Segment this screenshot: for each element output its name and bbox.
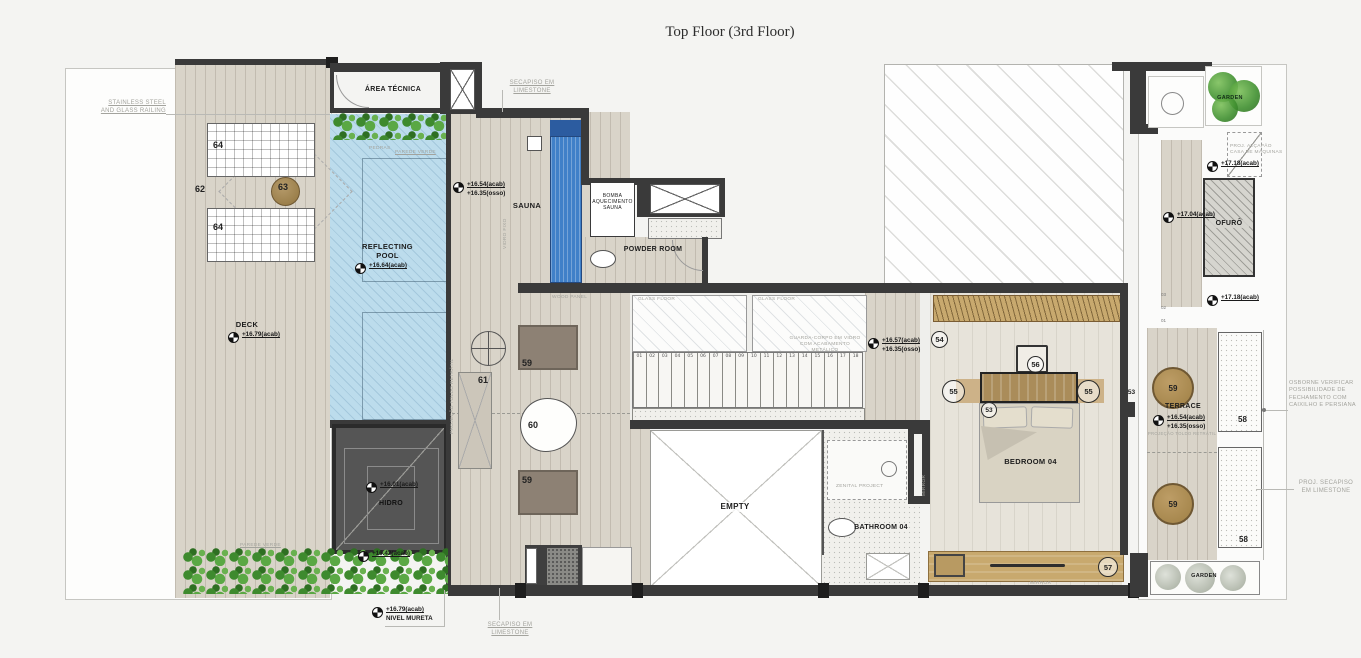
pedras-note: PEDRAS <box>369 146 391 152</box>
pilaster <box>918 583 929 598</box>
floor-strip <box>630 428 650 585</box>
room-label-bathroom: BATHROOM 04 <box>846 524 916 532</box>
wall <box>330 63 448 72</box>
item-number: 62 <box>195 184 205 194</box>
proj-alcapao-note: PROJ. ALÇAPÃO CASA DE MÁQUINAS <box>1230 144 1283 156</box>
round-table <box>471 331 506 366</box>
shower-head <box>881 461 897 477</box>
partition-slot <box>914 434 922 496</box>
room-label-bedroom: BEDROOM 04 <box>988 457 1073 466</box>
level-marker: +16.54(acab)+16.35(osso) <box>453 181 505 198</box>
terrace-pot-59: 59 <box>1152 483 1194 525</box>
mirror-note: MIRROR <box>922 466 928 496</box>
list-item: 05 <box>684 353 697 407</box>
leader-line <box>444 590 445 627</box>
pool-hedge <box>332 113 450 140</box>
sauna-plunge-pool <box>550 136 582 283</box>
level-marker: +16.01(acab) <box>366 481 418 493</box>
room-label-powder: POWDER ROOM <box>608 246 698 254</box>
roof-hatch-area <box>884 64 1124 287</box>
item-number: 59 <box>522 475 532 485</box>
zenital-note: ZENITAL PROJECT <box>836 484 883 490</box>
item-number: 59 <box>522 358 532 368</box>
vidro-fixo-note: VIDRO FIXO <box>503 205 509 249</box>
shaft-xbox <box>650 184 720 214</box>
list-item: 09 <box>735 353 748 407</box>
level-marker-icon <box>868 338 879 349</box>
wall <box>630 420 930 429</box>
wall <box>448 585 1136 596</box>
parede-verde-note: PAREDE VERDE <box>395 150 436 156</box>
level-marker: +16.79(acab)NIVEL MURETA <box>372 606 433 623</box>
proj-secapiso-note: PROJ. SECAPISO EM LIMESTONE <box>1295 480 1357 496</box>
wall <box>1112 62 1212 71</box>
item-number: 64 <box>213 140 223 150</box>
cabinet-grate <box>547 548 578 585</box>
item-number-circle: 56 <box>1027 356 1044 373</box>
level-marker: +16.64(acab) <box>355 262 407 274</box>
leader-line <box>499 588 500 620</box>
leader-line <box>166 114 330 115</box>
level-marker: +17.04(acab) <box>1163 211 1215 223</box>
powder-vanity <box>648 218 722 239</box>
level-marker-icon <box>1163 212 1174 223</box>
leader-line <box>1256 489 1294 490</box>
list-item: 17 <box>837 353 850 407</box>
level-marker: +16.42(acab) <box>358 550 410 562</box>
item-number: 58 <box>1238 415 1247 424</box>
proj-toldo-note: PROJEÇÃO TOLDO RETRÁTIL <box>450 348 456 434</box>
secapiso-top-note: SECAPISO EM LIMESTONE <box>506 80 558 96</box>
shaft-marks: 030201 <box>1161 288 1166 327</box>
level-marker-icon <box>372 607 383 618</box>
page-title: Top Floor (3rd Floor) <box>640 24 820 41</box>
list-item: 03 <box>1161 288 1166 301</box>
sauna-pool-dark <box>550 120 582 136</box>
floor-plan-sheet: Top Floor (3rd Floor) 64 64 62 63 ÁREA T… <box>0 0 1361 658</box>
level-marker-icon <box>1153 415 1164 426</box>
list-item: 01 <box>1161 314 1166 327</box>
deck-skylight <box>207 208 315 262</box>
osborne-note: OSBORNE VERIFICAR POSSIBILIDADE DE FECHA… <box>1289 380 1359 409</box>
secapiso-bottom-note: SECAPISO EM LIMESTONE <box>478 622 542 638</box>
list-item: 08 <box>722 353 735 407</box>
headboard <box>980 372 1078 403</box>
list-item: 06 <box>697 353 710 407</box>
level-marker: +17.18(acab) <box>1207 294 1259 306</box>
list-item: 15 <box>811 353 824 407</box>
level-marker-icon <box>453 182 464 193</box>
railing-note: STAINLESS STEEL AND GLASS RAILING <box>100 100 166 116</box>
deck-skylight <box>207 123 315 177</box>
wall <box>1130 68 1146 127</box>
room-label-sauna: SAUNA <box>507 201 547 210</box>
item-number: 64 <box>213 222 223 232</box>
item-number: 58 <box>1239 535 1248 544</box>
wood-panel-note: WOOD PANEL <box>552 295 587 301</box>
glass-floor-note: GLASS FLOOR <box>758 297 795 303</box>
right-corridor-floor <box>1161 140 1202 307</box>
list-item: 04 <box>671 353 684 407</box>
level-marker: +16.54(acab)+16.35(osso) <box>1153 414 1205 431</box>
room-label-empty: EMPTY <box>700 502 770 512</box>
wall <box>175 59 332 65</box>
level-marker: +17.18(acab) <box>1207 160 1259 172</box>
item-number: 60 <box>528 420 538 430</box>
list-item: 02 <box>646 353 659 407</box>
level-marker-icon <box>228 332 239 343</box>
level-marker: +16.79(acab) <box>228 331 280 343</box>
leader-line <box>1264 410 1288 411</box>
item-number-circle: 54 <box>931 331 948 348</box>
vanity <box>866 553 910 580</box>
corridor-floor <box>865 293 920 420</box>
item-number: 61 <box>478 375 488 385</box>
list-item: 18 <box>849 353 862 407</box>
wall <box>822 430 824 555</box>
hidro-inner <box>367 466 415 530</box>
level-marker-icon <box>366 482 377 493</box>
room-label-hidro: HIDRO <box>370 500 412 508</box>
bench-frame <box>934 554 965 577</box>
list-item: 16 <box>824 353 837 407</box>
item-number-circle: 57 <box>1098 557 1118 577</box>
list-item: 13 <box>786 353 799 407</box>
toldo-dashed-line <box>1147 452 1217 453</box>
staircase: 010203040506070809101112131415161718 <box>632 352 863 408</box>
room-label-pool: REFLECTING POOL <box>355 242 420 260</box>
level-marker-icon <box>1207 161 1218 172</box>
list-item: 07 <box>709 353 722 407</box>
rug-61 <box>458 372 492 469</box>
shaft-xbox <box>450 69 475 110</box>
counter <box>582 547 632 587</box>
wall <box>1130 553 1148 597</box>
terrace-floor <box>1147 328 1217 560</box>
leader-line <box>385 626 445 627</box>
level-marker-icon <box>1207 295 1218 306</box>
list-item: 03 <box>658 353 671 407</box>
list-item: 10 <box>747 353 760 407</box>
parede-verde-note: PAREDE VERDE <box>240 543 281 549</box>
list-item: 01 <box>633 353 646 407</box>
list-item: 11 <box>760 353 773 407</box>
tv <box>990 564 1065 567</box>
wall <box>330 63 334 112</box>
garden-label: GARDEN <box>1172 573 1236 580</box>
leader-dot <box>1262 408 1266 412</box>
wall <box>581 108 589 183</box>
room-label-ofuro: OFURÔ <box>1209 220 1249 228</box>
proj-toldo-note: PROJEÇÃO TOLDO RETRÁTIL <box>1146 431 1218 437</box>
pilaster <box>818 583 829 598</box>
pilaster <box>515 583 526 598</box>
pilaster <box>632 583 643 598</box>
level-marker-icon <box>358 551 369 562</box>
closet-rail <box>933 295 1123 322</box>
sauna-vent <box>527 136 542 151</box>
item-number: 53 <box>1123 384 1140 401</box>
pool-inner-outline <box>362 312 450 420</box>
item-number: 63 <box>278 182 288 192</box>
bomba-label: BOMBA AQUECIMENTO SAUNA <box>591 193 634 211</box>
garden-label: GARDEN <box>1208 95 1252 102</box>
room-label-terrace: TERRACE <box>1150 403 1216 411</box>
glass-floor-note: GLASS FLOOR <box>638 297 675 303</box>
list-item: 02 <box>1161 301 1166 314</box>
room-label-area-tecnica: ÁREA TÉCNICA <box>358 86 428 94</box>
wall <box>1120 283 1128 555</box>
item-number-circle: 53 <box>981 402 997 418</box>
level-marker-icon <box>355 263 366 274</box>
item-number-circle: 55 <box>1077 380 1100 403</box>
pillow <box>1031 406 1074 428</box>
level-marker: +16.57(acab)+16.35(osso) <box>868 337 920 354</box>
list-item: 14 <box>798 353 811 407</box>
list-item: 12 <box>773 353 786 407</box>
leader-line <box>502 90 503 112</box>
wall <box>476 108 586 118</box>
planter-58 <box>1218 447 1262 548</box>
glass-floor-panel <box>632 295 747 352</box>
wall <box>1123 402 1135 417</box>
item-number-circle: 55 <box>942 380 965 403</box>
wall <box>518 283 1125 293</box>
room-label-deck: DECK <box>232 320 262 329</box>
garden-table <box>1161 92 1184 115</box>
boundary-line <box>1263 330 1264 560</box>
cabinet-slot <box>526 548 537 584</box>
wall <box>330 108 452 113</box>
